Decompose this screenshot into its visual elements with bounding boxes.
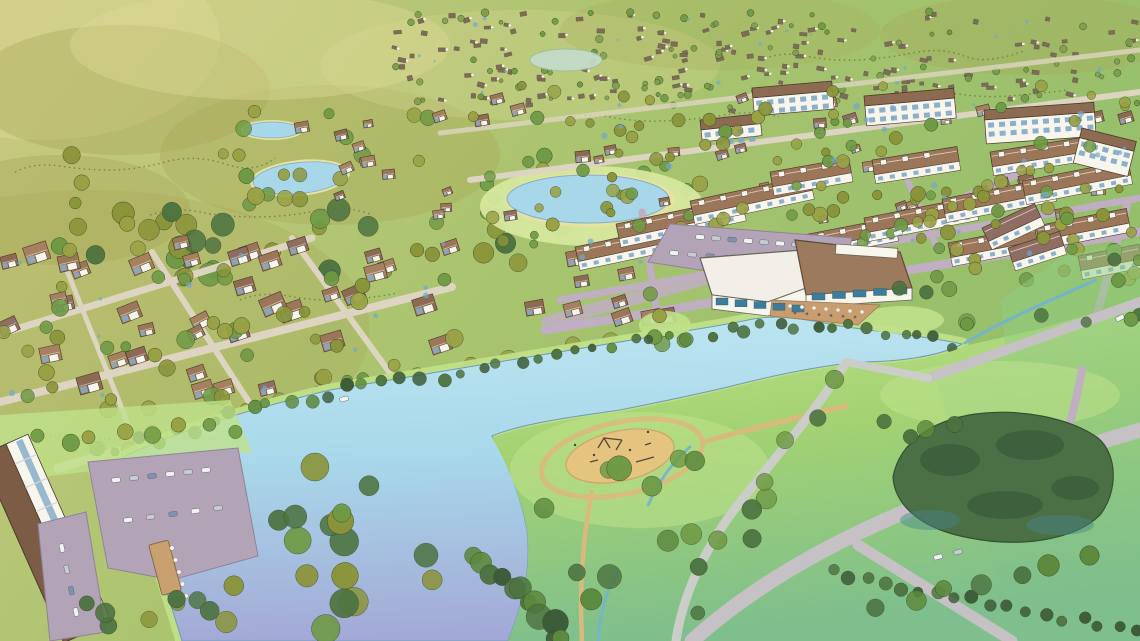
tree [1126, 39, 1134, 47]
tree [803, 204, 815, 216]
tree [1017, 165, 1027, 175]
tree [1111, 274, 1125, 288]
car [169, 511, 178, 517]
tree [756, 473, 773, 490]
water-dab [687, 18, 690, 21]
car [214, 505, 223, 511]
tree [709, 531, 727, 549]
tree [607, 172, 617, 182]
car [760, 239, 769, 244]
tree [207, 316, 220, 329]
tree [673, 54, 677, 58]
tree [656, 92, 660, 96]
distant-house [1062, 39, 1067, 43]
house [382, 169, 395, 180]
patio-umbrella [177, 570, 181, 574]
window [812, 293, 825, 300]
tree [82, 431, 95, 444]
tree [393, 63, 400, 70]
distant-house [831, 76, 836, 80]
tree [672, 114, 685, 127]
patio-umbrella [818, 313, 821, 316]
tree [1119, 97, 1130, 108]
tree [1061, 212, 1074, 225]
tree [916, 233, 926, 243]
distant-house [454, 46, 460, 51]
tree [480, 363, 490, 373]
tree [985, 600, 997, 612]
patio-umbrella [854, 316, 857, 319]
tree [703, 113, 716, 126]
tree [438, 374, 451, 387]
tree [248, 105, 261, 118]
tree [1034, 308, 1048, 322]
tree [736, 202, 748, 214]
tree [47, 382, 59, 394]
tree [728, 322, 739, 333]
tree [284, 505, 307, 528]
distant-house [449, 13, 456, 18]
distant-house [891, 67, 897, 73]
distant-house [873, 86, 878, 90]
distant-house [851, 28, 856, 32]
water-dab [666, 163, 672, 169]
distant-house [656, 50, 662, 55]
tree [950, 243, 963, 256]
water-dab [97, 335, 100, 338]
tree [552, 18, 558, 24]
distant-house [863, 71, 868, 76]
water-dab [1118, 150, 1123, 155]
distant-house [410, 54, 414, 58]
distant-house [480, 39, 487, 44]
water-dab [891, 117, 894, 120]
distant-house [537, 75, 542, 79]
distant-house [491, 77, 497, 81]
distant-house [438, 48, 445, 52]
tree [877, 414, 892, 429]
tree [896, 40, 902, 46]
tree [776, 318, 787, 329]
tree [408, 19, 415, 26]
tree [247, 188, 264, 205]
tree [827, 85, 839, 97]
tree [420, 98, 425, 103]
water-dab [353, 348, 357, 352]
tree [148, 348, 162, 362]
tree [359, 476, 379, 496]
tree [586, 119, 595, 128]
distant-house [671, 42, 678, 47]
car [148, 473, 157, 478]
tree [889, 131, 902, 144]
tree [324, 271, 339, 286]
tree [276, 306, 292, 322]
distant-house-wall [471, 74, 474, 76]
tree [892, 281, 907, 296]
tree [120, 216, 135, 231]
water-dab [943, 195, 947, 199]
distant-house-wall [764, 57, 767, 59]
tree [442, 18, 448, 24]
patio-umbrella [860, 310, 864, 314]
tree [1021, 94, 1029, 102]
water-dab [1095, 152, 1100, 157]
tree [947, 201, 957, 211]
tree [751, 23, 757, 29]
distant-house-wall [764, 69, 767, 71]
distant-house-wall [769, 73, 772, 75]
tree [653, 309, 667, 323]
house [524, 299, 545, 316]
tree [814, 322, 825, 333]
tree [731, 125, 742, 136]
tree [306, 395, 319, 408]
patio-umbrella [180, 582, 184, 586]
tree [690, 558, 707, 575]
window [716, 298, 728, 305]
distant-pond [530, 49, 602, 71]
tree [486, 211, 499, 224]
tree [669, 47, 674, 52]
tree [56, 281, 67, 292]
tree [1020, 607, 1030, 617]
car [688, 252, 697, 257]
tree [818, 23, 825, 30]
tree [141, 611, 158, 628]
tree [597, 564, 621, 588]
tree [534, 355, 543, 364]
tree [445, 330, 463, 348]
tree [716, 49, 722, 55]
tree [894, 583, 908, 597]
tree [31, 429, 44, 442]
house [361, 155, 376, 168]
tree [1126, 227, 1136, 237]
tree [717, 212, 731, 226]
water-dab [423, 285, 428, 290]
tree [1069, 115, 1081, 127]
water-dab [1025, 20, 1029, 24]
tree [991, 204, 1004, 217]
distant-house [1008, 97, 1013, 101]
tree [632, 334, 641, 343]
distant-house [793, 44, 799, 49]
car [166, 471, 175, 476]
distant-house [802, 41, 807, 45]
tree [1115, 621, 1125, 631]
water-dab [831, 157, 837, 163]
tree [310, 209, 330, 229]
patio-umbrella [788, 304, 792, 308]
distant-house [949, 58, 954, 62]
distant-house-wall [954, 59, 957, 61]
tree [977, 190, 990, 203]
distant-house [731, 50, 736, 55]
house [659, 197, 671, 207]
distant-house [496, 64, 502, 69]
tree [330, 589, 359, 618]
tree [1037, 93, 1042, 98]
distant-house-wall [1026, 83, 1029, 85]
tree [810, 410, 827, 427]
tree [971, 575, 992, 596]
tree [1096, 208, 1109, 221]
tree [284, 527, 311, 554]
water-dab [373, 313, 378, 318]
tree [768, 45, 773, 50]
water-dab [864, 117, 869, 122]
tree [537, 148, 553, 164]
tree [1001, 600, 1013, 612]
tree [846, 140, 857, 151]
tree [935, 580, 951, 596]
tree [376, 375, 387, 386]
distant-house-wall [1023, 79, 1026, 81]
water-dab [882, 127, 888, 133]
tree [546, 218, 559, 231]
tree [332, 563, 359, 590]
tree [490, 359, 500, 369]
tree [773, 156, 782, 165]
tree [1127, 55, 1134, 62]
tree [871, 56, 876, 61]
tree [1060, 45, 1067, 52]
tree [577, 82, 583, 88]
water-dab [186, 282, 192, 288]
tree [920, 285, 934, 299]
tree [534, 498, 554, 518]
distant-house-wall [804, 55, 807, 57]
water-dab [759, 42, 763, 46]
distant-house [758, 56, 764, 61]
distant-house [780, 71, 786, 75]
tree [497, 235, 509, 247]
tree [233, 318, 250, 335]
tree [653, 12, 660, 19]
water-dab [890, 105, 895, 110]
tree [791, 139, 802, 150]
tree [681, 15, 688, 22]
water-dab [483, 17, 487, 21]
distant-house [680, 53, 688, 57]
tree [139, 219, 160, 240]
distant-house [1015, 43, 1022, 47]
tree [481, 9, 489, 17]
tree [39, 365, 55, 381]
tree [679, 333, 693, 347]
distant-house [1020, 83, 1027, 88]
distant-house-wall [1136, 39, 1139, 41]
tree [301, 453, 329, 481]
tree [645, 96, 655, 106]
patio-umbrella [794, 312, 797, 315]
tree [876, 146, 887, 157]
tree [327, 198, 350, 221]
tree [117, 424, 133, 440]
house [574, 275, 590, 288]
water-dab [957, 230, 961, 234]
tree [681, 524, 702, 545]
tree [963, 198, 976, 211]
water-dab [638, 260, 642, 264]
tree [969, 262, 982, 275]
rendering-canvas [0, 0, 1140, 641]
distant-house-wall [487, 97, 490, 99]
distant-house [1045, 17, 1050, 22]
tree [867, 599, 885, 617]
tree [211, 213, 234, 236]
tree [841, 571, 855, 585]
tree [588, 10, 593, 15]
distant-house-wall [844, 39, 847, 41]
tree [742, 500, 762, 520]
water-dab [994, 35, 998, 39]
window [874, 289, 887, 296]
tree [708, 332, 718, 342]
distant-house [484, 26, 491, 29]
tree [333, 504, 351, 522]
house [504, 210, 518, 221]
distant-house-wall [783, 20, 786, 22]
tree [152, 271, 165, 284]
distant-house [559, 33, 566, 38]
tree [692, 176, 708, 192]
distant-house [597, 29, 605, 34]
tree [827, 204, 840, 217]
tree [550, 186, 561, 197]
tree [484, 171, 495, 182]
tree [171, 418, 186, 433]
tree [607, 343, 617, 353]
tree [588, 344, 596, 352]
car [184, 469, 193, 474]
patio-umbrella [170, 546, 174, 550]
tree [816, 181, 826, 191]
distant-house [700, 13, 705, 18]
distant-house [1016, 79, 1023, 83]
tree [517, 357, 529, 369]
tree [925, 8, 933, 16]
tree [685, 451, 705, 471]
distant-house-wall [994, 86, 997, 88]
tree [162, 202, 181, 221]
tree [691, 606, 705, 620]
tree [121, 342, 131, 352]
tree [947, 30, 952, 35]
tree [912, 330, 921, 339]
tree [661, 94, 669, 102]
tree [612, 82, 619, 89]
water-dab [1078, 111, 1084, 117]
house [813, 118, 826, 128]
distant-house [799, 32, 807, 36]
tree [144, 427, 161, 444]
water-dab [1095, 76, 1097, 78]
tree [63, 147, 80, 164]
water-dab [716, 81, 720, 85]
tree [607, 456, 632, 481]
water-dab [239, 253, 244, 258]
house [432, 209, 444, 219]
distant-house [778, 19, 783, 24]
water-dab [418, 54, 421, 57]
tree [487, 68, 492, 73]
tree [22, 345, 34, 357]
tree [458, 15, 465, 22]
water-dab [18, 261, 22, 265]
tree [719, 125, 733, 139]
tree [530, 240, 538, 248]
distant-house [981, 83, 988, 87]
car [712, 236, 721, 241]
tree [1037, 232, 1050, 245]
tree [949, 593, 960, 604]
tree [468, 112, 478, 122]
tree [358, 216, 378, 236]
tree [872, 190, 882, 200]
tree [691, 45, 697, 51]
tree [981, 180, 993, 192]
water-dab [624, 278, 627, 281]
tree [69, 197, 81, 209]
tree [425, 247, 440, 262]
tree [743, 529, 761, 547]
tree [1080, 546, 1099, 565]
tree [548, 70, 553, 75]
tree [657, 530, 678, 551]
tree [415, 11, 422, 18]
tree [292, 191, 308, 207]
distant-house [793, 63, 798, 68]
distant-house-wall [491, 26, 494, 28]
tree [499, 20, 503, 24]
patio-umbrella [848, 309, 852, 313]
distant-house [1034, 45, 1039, 49]
tree [216, 611, 238, 633]
tree [62, 434, 79, 451]
tree [293, 168, 307, 182]
tree [456, 370, 464, 378]
tree [926, 191, 935, 200]
tree [879, 82, 888, 91]
tree [606, 184, 619, 197]
tree [994, 175, 1008, 189]
water-dab [1042, 191, 1048, 197]
tree [1034, 136, 1048, 150]
water-dab [423, 293, 429, 299]
tree [755, 319, 764, 328]
tree [40, 321, 53, 334]
tree [79, 596, 94, 611]
tree [1100, 75, 1104, 79]
distant-house-wall [905, 45, 908, 47]
car [202, 467, 211, 472]
tree [596, 35, 604, 43]
tree [626, 131, 638, 143]
tree [100, 341, 114, 355]
tree [704, 83, 710, 89]
tree [571, 346, 580, 355]
patio-umbrella [173, 558, 177, 562]
water-dab [473, 22, 478, 27]
tree [1087, 91, 1096, 100]
distant-house [818, 50, 823, 56]
distant-house [973, 19, 979, 25]
tree [422, 570, 442, 590]
tree [1035, 80, 1047, 92]
tree [95, 603, 115, 623]
